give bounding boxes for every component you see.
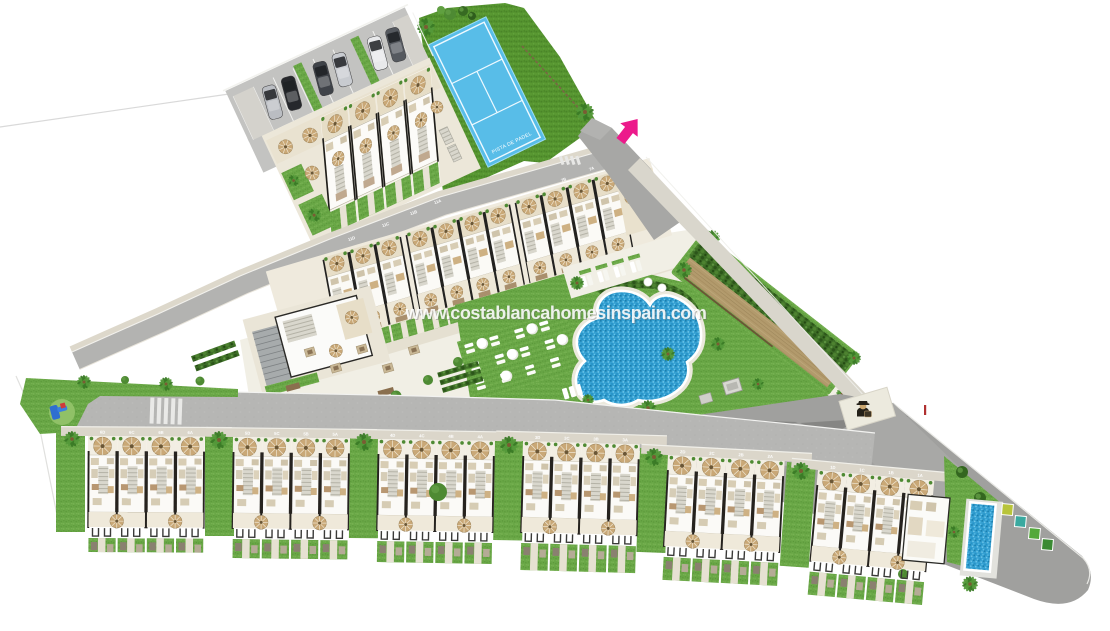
svg-text:6D: 6D [100, 430, 105, 435]
svg-text:www.costablancahomesinspain.co: www.costablancahomesinspain.com [404, 303, 706, 323]
svg-text:1A: 1A [917, 473, 923, 478]
svg-text:2A: 2A [767, 454, 773, 459]
svg-text:6B: 6B [158, 430, 163, 435]
svg-text:3C: 3C [564, 436, 569, 441]
svg-text:3D: 3D [535, 435, 540, 440]
svg-text:5D: 5D [245, 431, 250, 436]
svg-text:4D: 4D [390, 433, 395, 438]
svg-text:5C: 5C [274, 431, 279, 436]
svg-text:5B: 5B [303, 431, 308, 436]
svg-text:3A: 3A [623, 437, 628, 442]
svg-text:3B: 3B [593, 436, 598, 441]
svg-text:1C: 1C [859, 467, 865, 472]
svg-text:4A: 4A [478, 434, 483, 439]
svg-text:4C: 4C [419, 433, 424, 438]
svg-text:2B: 2B [738, 452, 744, 457]
svg-text:1D: 1D [830, 465, 836, 470]
svg-text:2C: 2C [709, 451, 715, 456]
svg-text:5A: 5A [333, 432, 338, 437]
svg-text:2D: 2D [680, 449, 686, 454]
svg-text:4B: 4B [448, 434, 453, 439]
svg-text:1B: 1B [888, 470, 894, 475]
svg-text:6A: 6A [188, 430, 193, 435]
svg-text:6C: 6C [129, 430, 134, 435]
